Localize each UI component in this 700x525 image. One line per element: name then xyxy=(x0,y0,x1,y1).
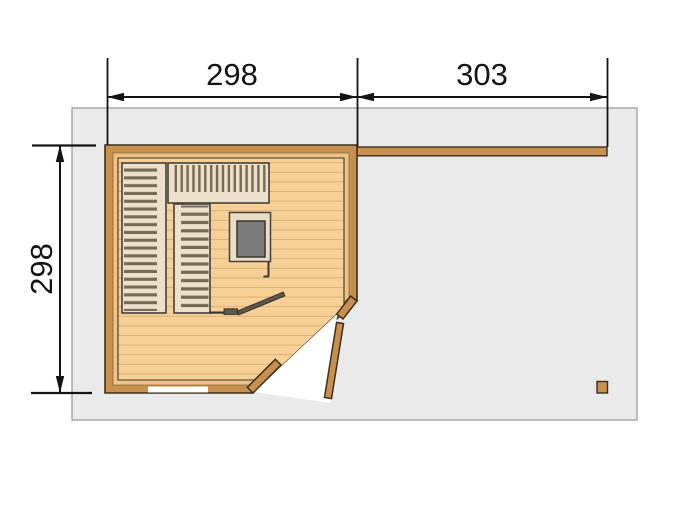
roof-beam xyxy=(353,147,607,156)
corner-post xyxy=(597,382,608,394)
arrowhead xyxy=(56,145,64,162)
bench-left-slats xyxy=(124,165,157,311)
bench-middle xyxy=(174,204,210,313)
sauna-door-frame xyxy=(224,309,238,315)
arrowhead xyxy=(590,93,607,101)
dimension-label-top-left: 298 xyxy=(206,57,258,92)
arrowhead xyxy=(56,376,64,393)
sauna-window-pane xyxy=(237,221,265,257)
arrowhead xyxy=(340,93,357,101)
bench-top-slats xyxy=(173,165,266,192)
arrowhead xyxy=(107,93,124,101)
dimension-label-left: 298 xyxy=(24,243,59,295)
dimension-label-top-right: 303 xyxy=(456,57,508,92)
floor-plan-canvas: 298 303 298 xyxy=(0,0,700,525)
bench-left xyxy=(122,163,166,313)
bench-top xyxy=(168,163,269,203)
bottom-wall-opening xyxy=(148,387,208,393)
floor-plan-drawing: 298 303 298 xyxy=(0,0,700,525)
bench-middle-slats xyxy=(181,206,209,312)
arrowhead xyxy=(357,93,374,101)
